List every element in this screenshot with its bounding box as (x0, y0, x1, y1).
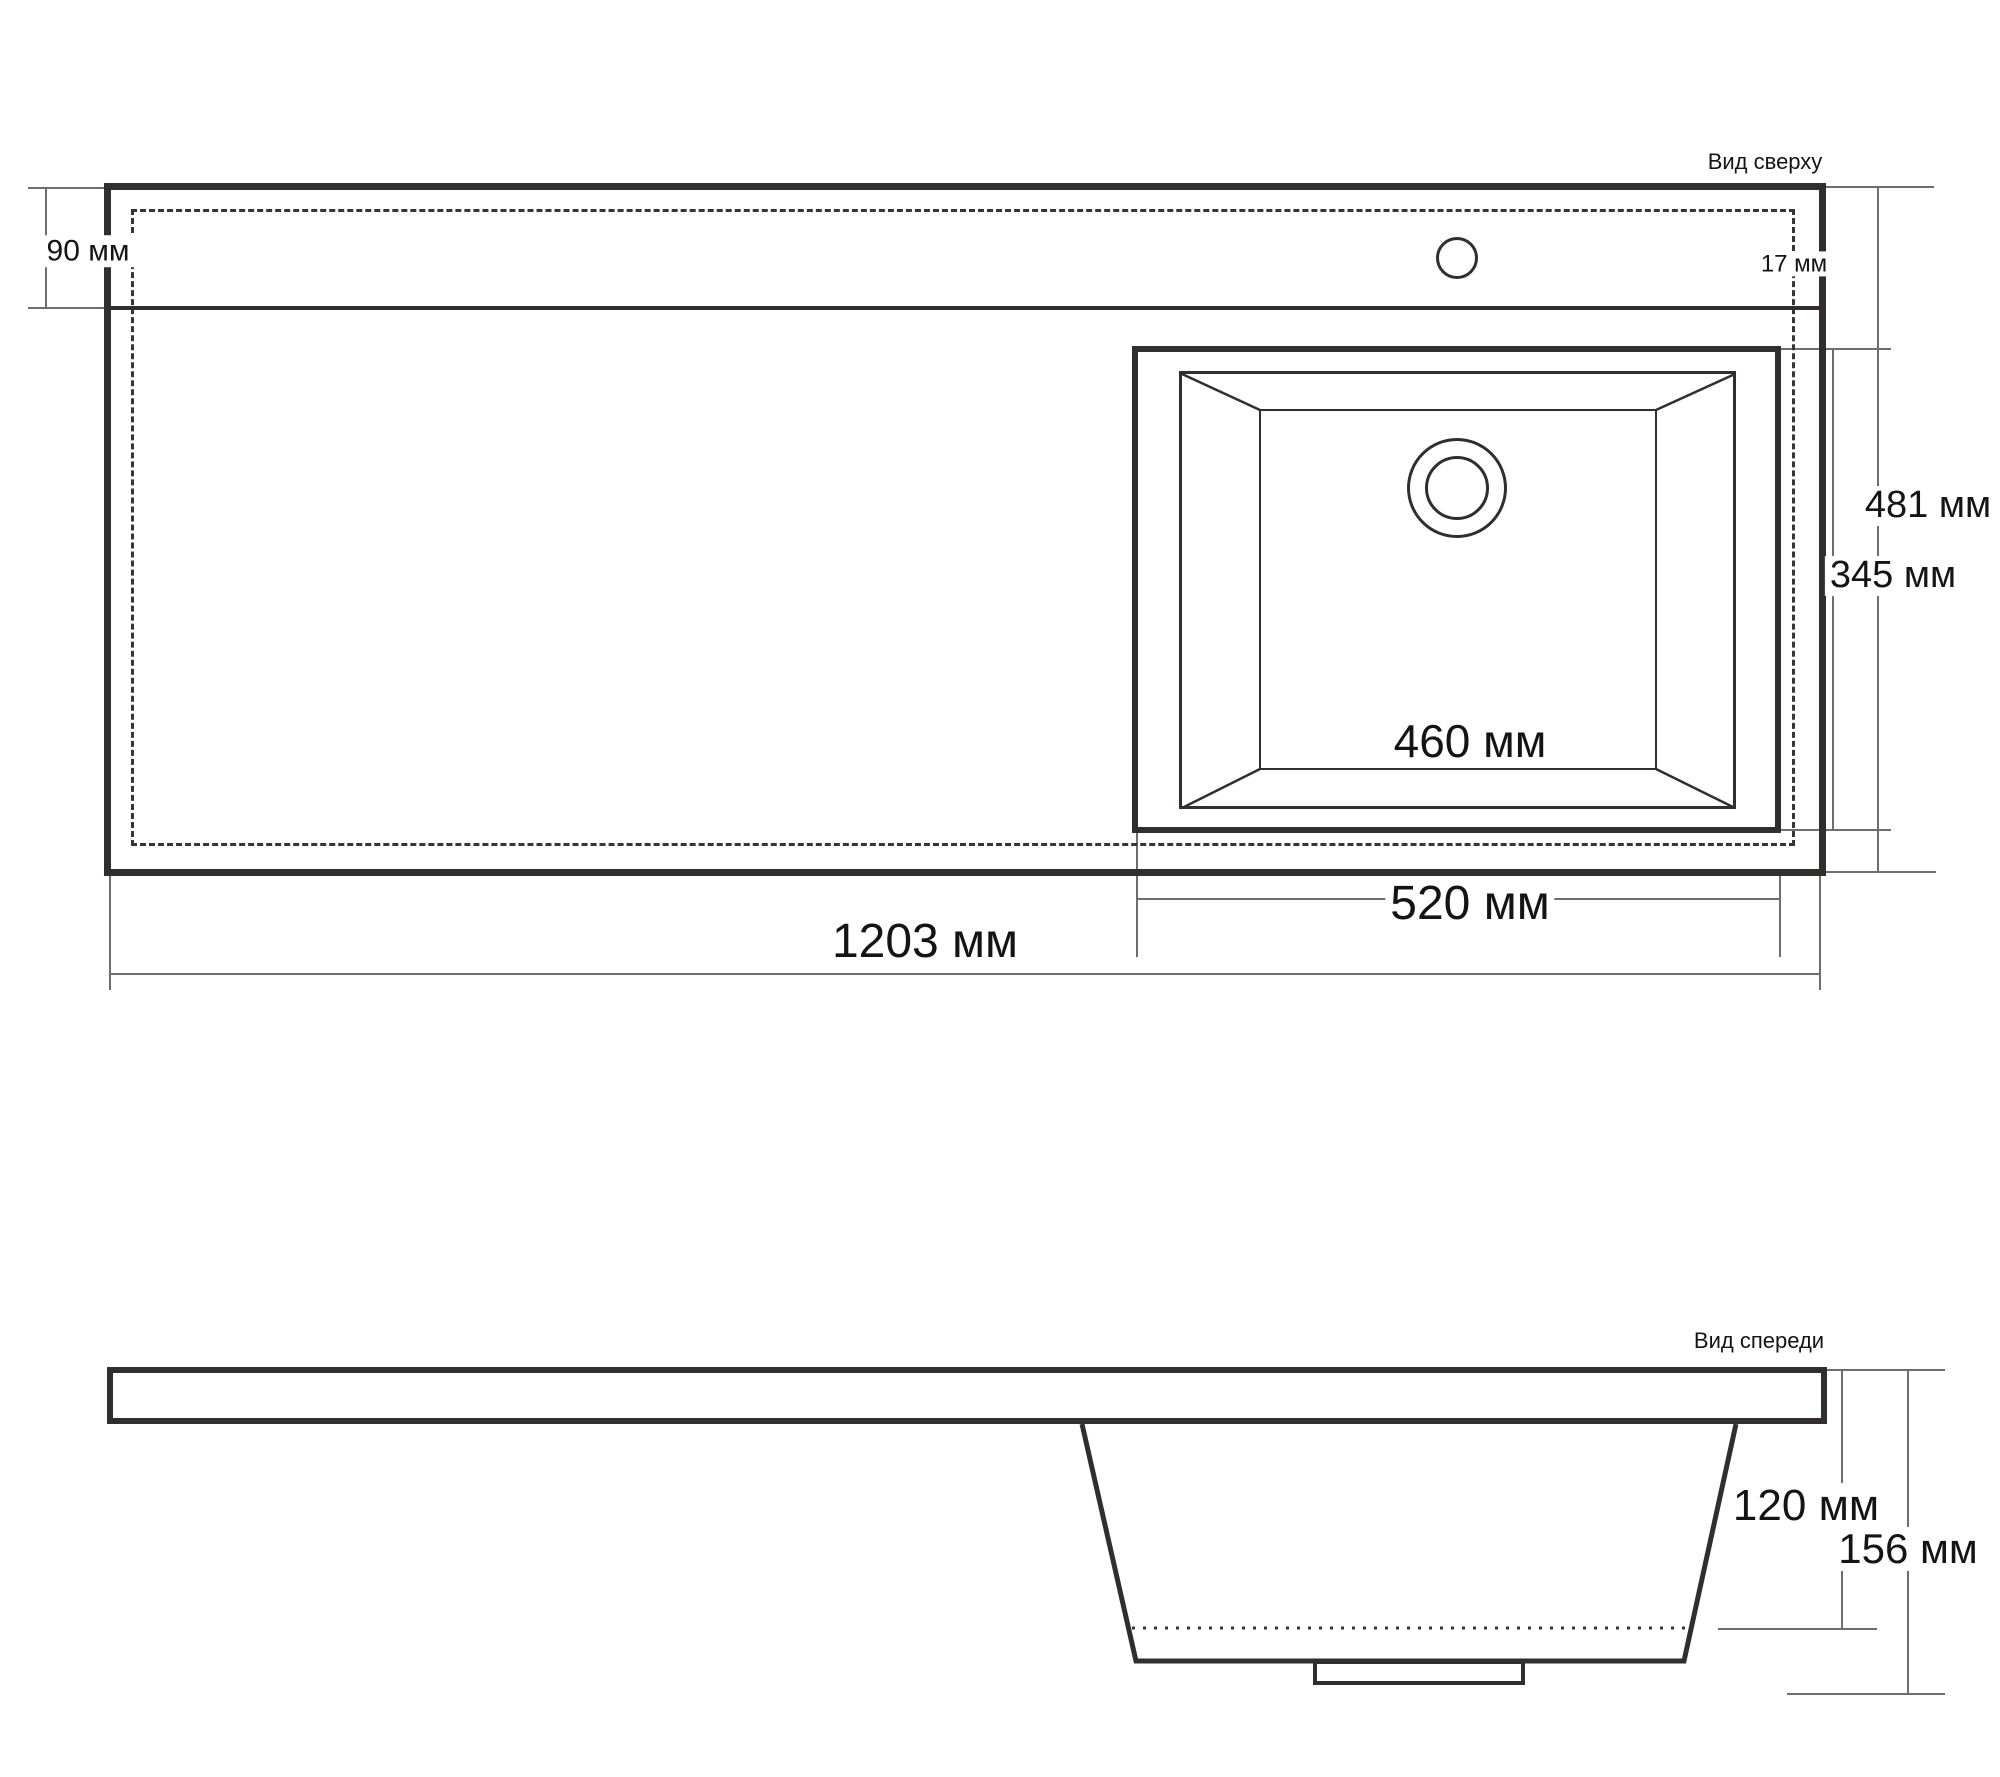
bowl-front-outline (1082, 1424, 1736, 1661)
drawing-lines-overlay (0, 0, 2000, 1777)
dim-label-overall-height: 156 мм (1833, 1527, 1983, 1571)
dim-label-bowl-depth: 120 мм (1728, 1483, 1884, 1529)
dim-label-overall-width: 1203 мм (832, 917, 1018, 967)
front-view-title: Вид спереди (1694, 1328, 1824, 1354)
bowl-corner-line-bl (1182, 769, 1260, 808)
top-view-title: Вид сверху (1708, 149, 1823, 175)
technical-drawing-sink: Вид сверху Вид спереди (0, 0, 2000, 1777)
dim-label-sink-width: 520 мм (1385, 879, 1554, 929)
dim-label-deck-depth: 90 мм (42, 235, 135, 267)
dim-label-bowl-width: 460 мм (1389, 717, 1552, 765)
bowl-corner-line-tl (1182, 374, 1260, 410)
dim-label-overall-depth: 481 мм (1860, 486, 1996, 526)
dim-label-sink-depth: 345 мм (1825, 556, 1961, 596)
bowl-corner-line-br (1656, 769, 1735, 808)
dim-label-rim-offset: 17 мм (1756, 251, 1832, 276)
bowl-corner-line-tr (1656, 374, 1735, 410)
